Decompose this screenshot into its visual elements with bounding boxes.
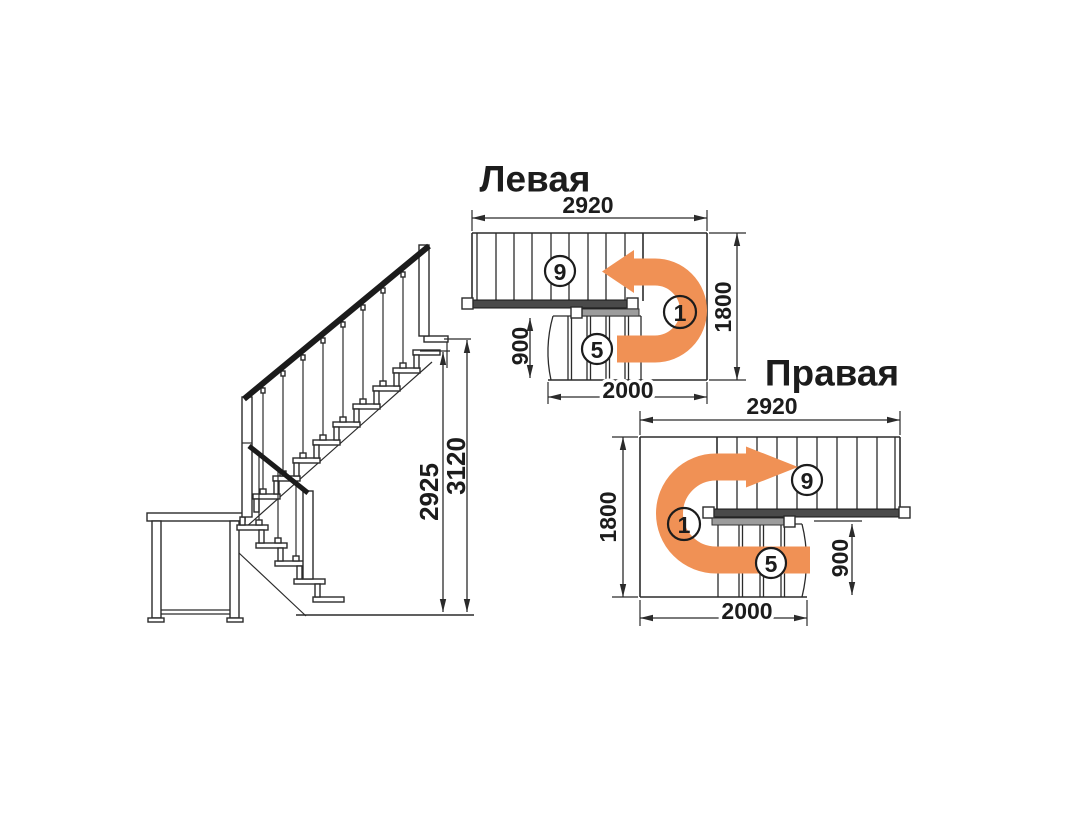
dim-height-total: 3120 (441, 437, 471, 495)
dim-left-width: 2920 (562, 192, 613, 218)
dim-height-inner: 2925 (414, 463, 444, 521)
dim-left-lower-length: 2000 (602, 377, 653, 403)
arrowhead-right (746, 447, 798, 488)
callout-1-label: 1 (678, 512, 691, 538)
left-plan-view: Левая (462, 159, 746, 405)
top-newel-post (419, 245, 429, 336)
support-box (147, 513, 245, 622)
callout-9-label: 9 (801, 468, 814, 494)
dim-right-depth: 1800 (595, 491, 621, 542)
elevation-view: 2925 3120 (147, 245, 474, 622)
lower-flight-steps (237, 517, 344, 602)
turn-newel-post (242, 397, 252, 517)
stair-diagram-page: 2925 3120 Левая (0, 0, 1086, 816)
right-plan-title: Правая (765, 353, 899, 394)
right-plan-handrails (703, 507, 910, 527)
upper-balusters (260, 271, 406, 494)
bottom-newel-post (303, 491, 313, 579)
right-ascent-arrow (670, 447, 811, 561)
curved-entry-step (548, 316, 553, 380)
upper-handrail (244, 246, 429, 399)
dim-left-flight-width: 900 (507, 327, 533, 365)
dim-right-flight-width: 900 (827, 539, 853, 577)
dim-left-depth: 1800 (710, 281, 736, 332)
stair-diagram: 2925 3120 Левая (0, 0, 1086, 816)
callout-5-label: 5 (591, 337, 604, 363)
callout-1-label: 1 (674, 300, 687, 326)
callout-5-label: 5 (765, 551, 778, 577)
arrowhead-left (602, 250, 634, 293)
dim-right-lower-length: 2000 (721, 598, 772, 624)
dim-right-width: 2920 (746, 393, 797, 419)
left-plan-handrails (462, 298, 639, 318)
elevation-dimensions: 2925 3120 (414, 339, 471, 612)
callout-9-label: 9 (554, 259, 567, 285)
